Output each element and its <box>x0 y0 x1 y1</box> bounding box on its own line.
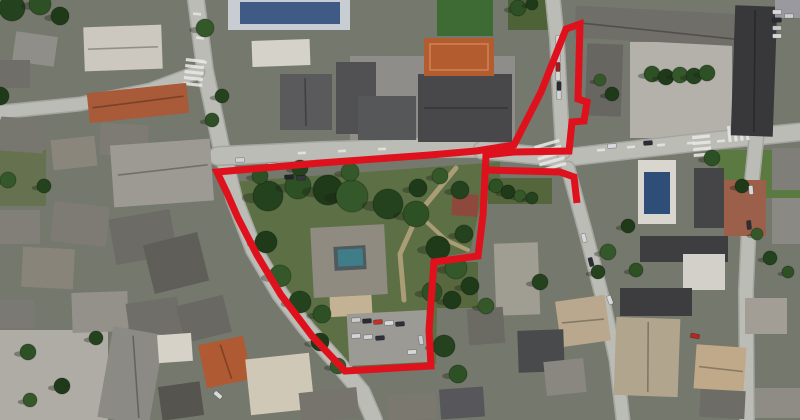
car <box>773 10 782 14</box>
tree <box>449 365 467 383</box>
house <box>439 387 485 420</box>
car <box>607 143 616 148</box>
tree <box>443 291 461 309</box>
car <box>351 333 360 338</box>
house <box>158 381 204 420</box>
lane-dash <box>193 12 201 15</box>
tree <box>205 113 219 127</box>
tree <box>763 251 777 265</box>
tree <box>20 344 36 360</box>
tree <box>51 7 69 25</box>
car <box>375 335 384 340</box>
car <box>351 317 360 322</box>
solar-panels <box>240 2 340 24</box>
tree <box>403 201 429 227</box>
tree <box>782 266 794 278</box>
tree <box>591 265 605 279</box>
house <box>387 393 436 420</box>
lane-dash <box>338 150 346 153</box>
lane-dash <box>657 143 665 146</box>
tree <box>54 378 70 394</box>
car <box>296 176 305 181</box>
tree <box>37 179 51 193</box>
tree <box>510 0 526 16</box>
dark-building <box>620 288 692 316</box>
tree <box>341 163 359 181</box>
tree <box>605 87 619 101</box>
building <box>755 388 800 418</box>
car <box>284 175 293 180</box>
school-wing <box>358 96 416 140</box>
villa-atrium-glass <box>338 248 364 266</box>
car <box>556 63 560 72</box>
tree <box>600 244 616 260</box>
tree <box>526 0 538 10</box>
building <box>745 298 787 334</box>
large-hip-roof-building <box>614 317 681 397</box>
tree <box>426 236 450 260</box>
tree <box>455 225 473 243</box>
orange-roof-house <box>198 336 252 389</box>
car <box>746 220 751 229</box>
tree <box>409 179 427 197</box>
car <box>748 185 753 194</box>
tree <box>594 74 606 86</box>
tree <box>451 181 469 199</box>
house <box>51 136 98 170</box>
house <box>0 117 45 154</box>
tree <box>621 219 635 233</box>
lane-dash <box>298 152 306 155</box>
house <box>0 300 34 328</box>
tree <box>699 65 715 81</box>
car <box>643 140 652 145</box>
lane-dash <box>597 148 605 151</box>
car <box>785 14 794 18</box>
house <box>252 39 311 67</box>
lane-dash <box>717 139 725 142</box>
tree <box>433 335 455 357</box>
house <box>71 291 128 333</box>
car <box>773 34 782 38</box>
building <box>543 358 586 396</box>
car <box>395 321 404 326</box>
tree <box>478 298 494 314</box>
tree <box>704 150 720 166</box>
dark-building <box>694 168 724 228</box>
tree <box>526 192 538 204</box>
house <box>157 333 193 363</box>
lane-dash <box>627 145 635 148</box>
satellite-image <box>0 0 800 420</box>
house <box>50 201 110 247</box>
hip-roof-house <box>694 344 747 391</box>
car <box>407 349 416 354</box>
car <box>362 318 371 323</box>
building <box>772 198 800 244</box>
tree <box>255 231 277 253</box>
sports-field <box>437 0 493 36</box>
car <box>363 334 372 339</box>
tree <box>0 172 16 188</box>
house <box>0 60 30 88</box>
tree <box>23 393 37 407</box>
school-wing-ridge <box>305 78 306 126</box>
building <box>699 389 745 419</box>
tree <box>89 331 103 345</box>
large-gray-building <box>110 139 214 208</box>
house <box>21 247 75 290</box>
car <box>235 158 244 163</box>
tree <box>313 305 331 323</box>
tree <box>461 277 479 295</box>
tree <box>735 179 749 193</box>
tree <box>432 168 448 184</box>
northeast-plaza <box>630 42 732 138</box>
car <box>556 72 560 81</box>
tree <box>215 89 229 103</box>
car <box>384 320 393 325</box>
car <box>773 18 782 22</box>
white-flat-building <box>683 254 725 290</box>
building <box>772 148 800 190</box>
tree <box>751 228 763 240</box>
tree <box>532 274 548 290</box>
house <box>0 210 40 244</box>
car <box>557 91 561 100</box>
tree <box>196 19 214 37</box>
aerial-map-view <box>0 0 800 420</box>
car <box>773 26 782 30</box>
solar-panels <box>644 172 670 214</box>
car <box>557 82 561 91</box>
car <box>373 319 382 324</box>
lane-dash <box>378 148 386 151</box>
tree <box>629 263 643 277</box>
